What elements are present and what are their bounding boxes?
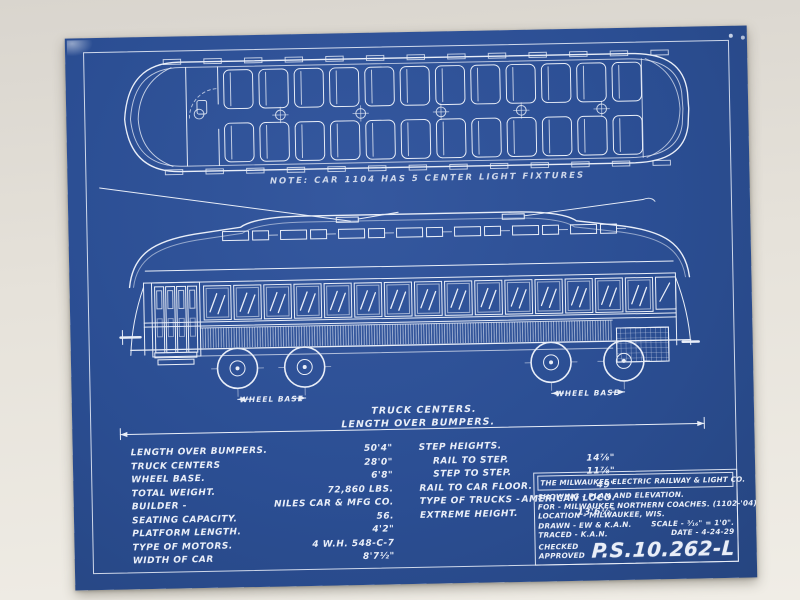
drawing-number: P.S.10.262-L xyxy=(591,538,735,561)
trolley-wire-line xyxy=(100,183,351,226)
blueprint-sheet: NOTE: CAR 1104 HAS 5 CENTER LIGHT FIXTUR… xyxy=(65,26,757,591)
checked-approved: CHECKED APPROVED xyxy=(539,542,586,562)
plan-view-drawing xyxy=(103,46,705,178)
title-block: THE MILWAUKEE ELECTRIC RAILWAY & LIGHT C… xyxy=(533,469,739,565)
wheel-base-label-right: WHEEL BASE xyxy=(555,388,619,398)
front-door xyxy=(151,282,200,357)
rear-end-post xyxy=(655,277,676,309)
photo-backdrop: NOTE: CAR 1104 HAS 5 CENTER LIGHT FIXTUR… xyxy=(0,0,800,600)
truck-centers-label: TRUCK CENTERS. xyxy=(371,404,477,417)
elevation-drawing: WHEEL BASE WHEEL BASE TRUCK CENTERS. LEN… xyxy=(98,176,725,440)
plan-seats-group xyxy=(163,50,670,175)
trolley-pole-right xyxy=(524,200,643,216)
corner-pin-marks xyxy=(729,34,733,38)
approved-label: APPROVED xyxy=(539,551,585,561)
elevation-generated-group xyxy=(203,223,655,397)
company-name: THE MILWAUKEE ELECTRIC RAILWAY & LIGHT C… xyxy=(537,472,733,490)
wheel-base-label-left: WHEEL BASE xyxy=(240,394,304,404)
spec-column-left: LENGTH OVER BUMPERS.50'4" TRUCK CENTERS2… xyxy=(131,442,395,569)
